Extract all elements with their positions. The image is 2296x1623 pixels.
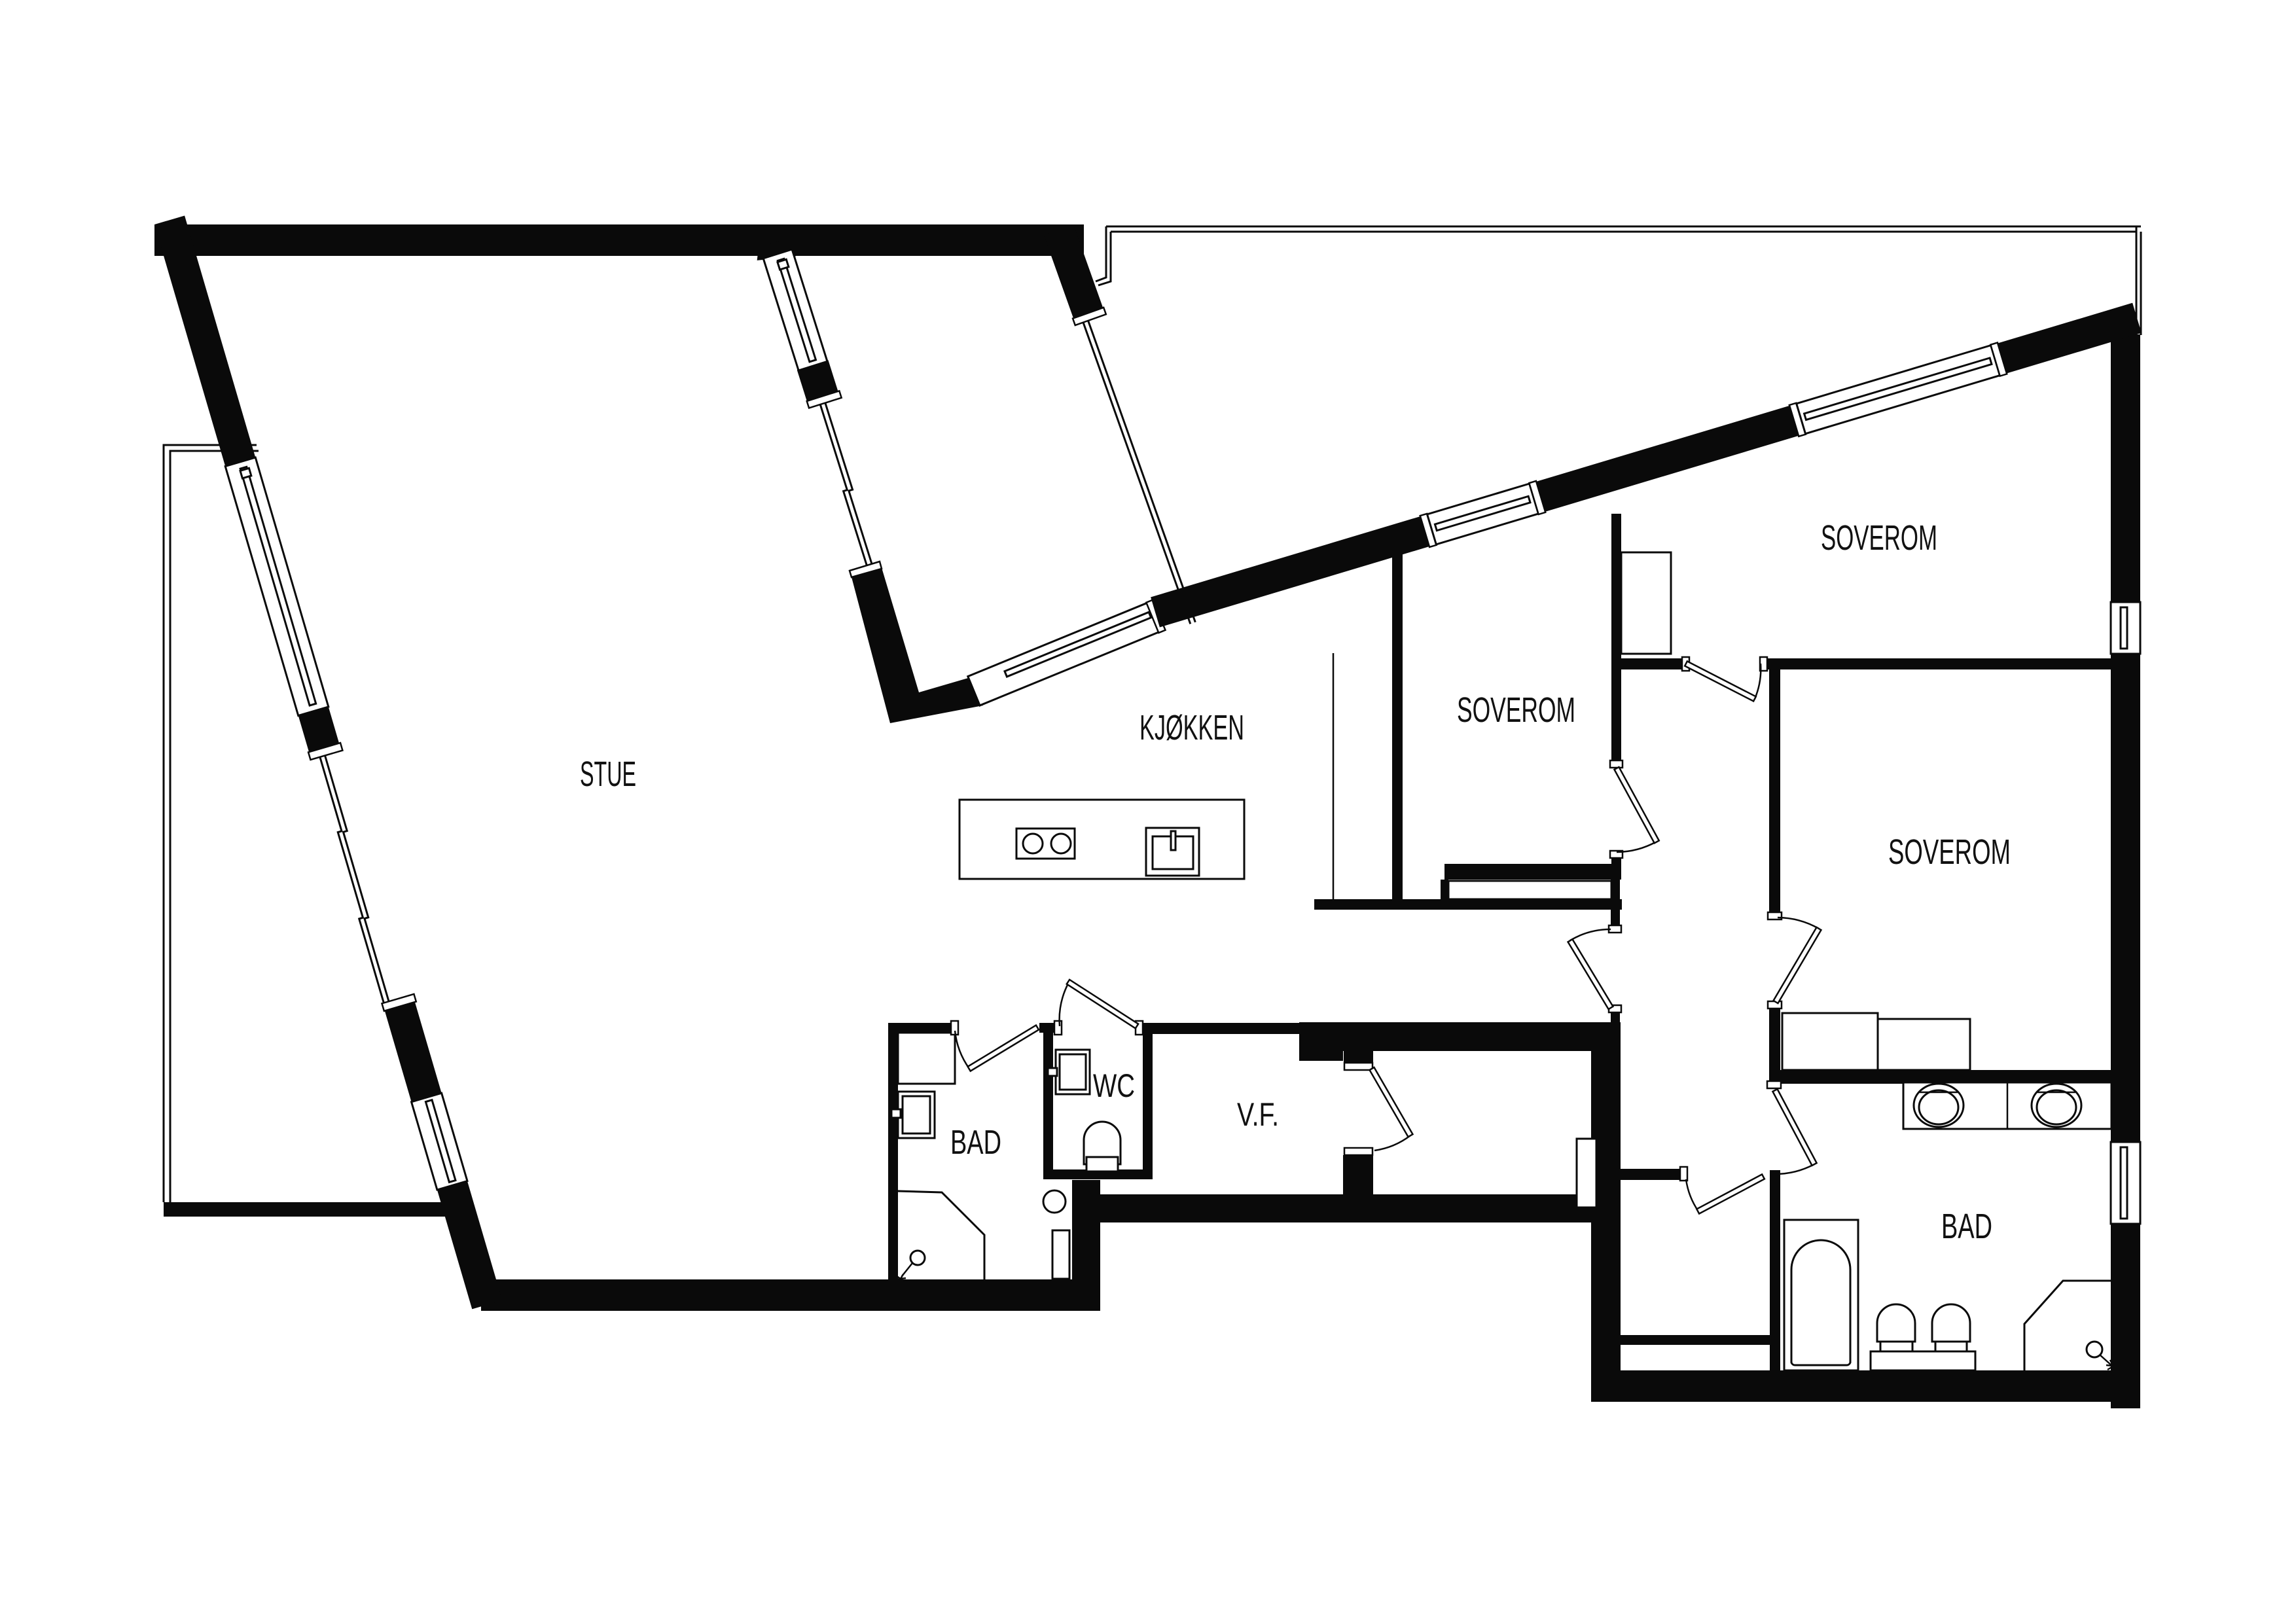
svg-text:V.F.: V.F. [1237,1096,1279,1133]
svg-text:KJØKKEN: KJØKKEN [1139,708,1244,747]
svg-text:BAD: BAD [950,1124,1001,1162]
svg-text:BAD: BAD [1941,1207,1992,1246]
svg-text:STUE: STUE [580,755,636,794]
svg-text:WC: WC [1093,1067,1135,1104]
svg-text:SOVEROM: SOVEROM [1821,518,1937,558]
svg-text:SOVEROM: SOVEROM [1888,832,2011,872]
svg-text:SOVEROM: SOVEROM [1457,690,1575,730]
